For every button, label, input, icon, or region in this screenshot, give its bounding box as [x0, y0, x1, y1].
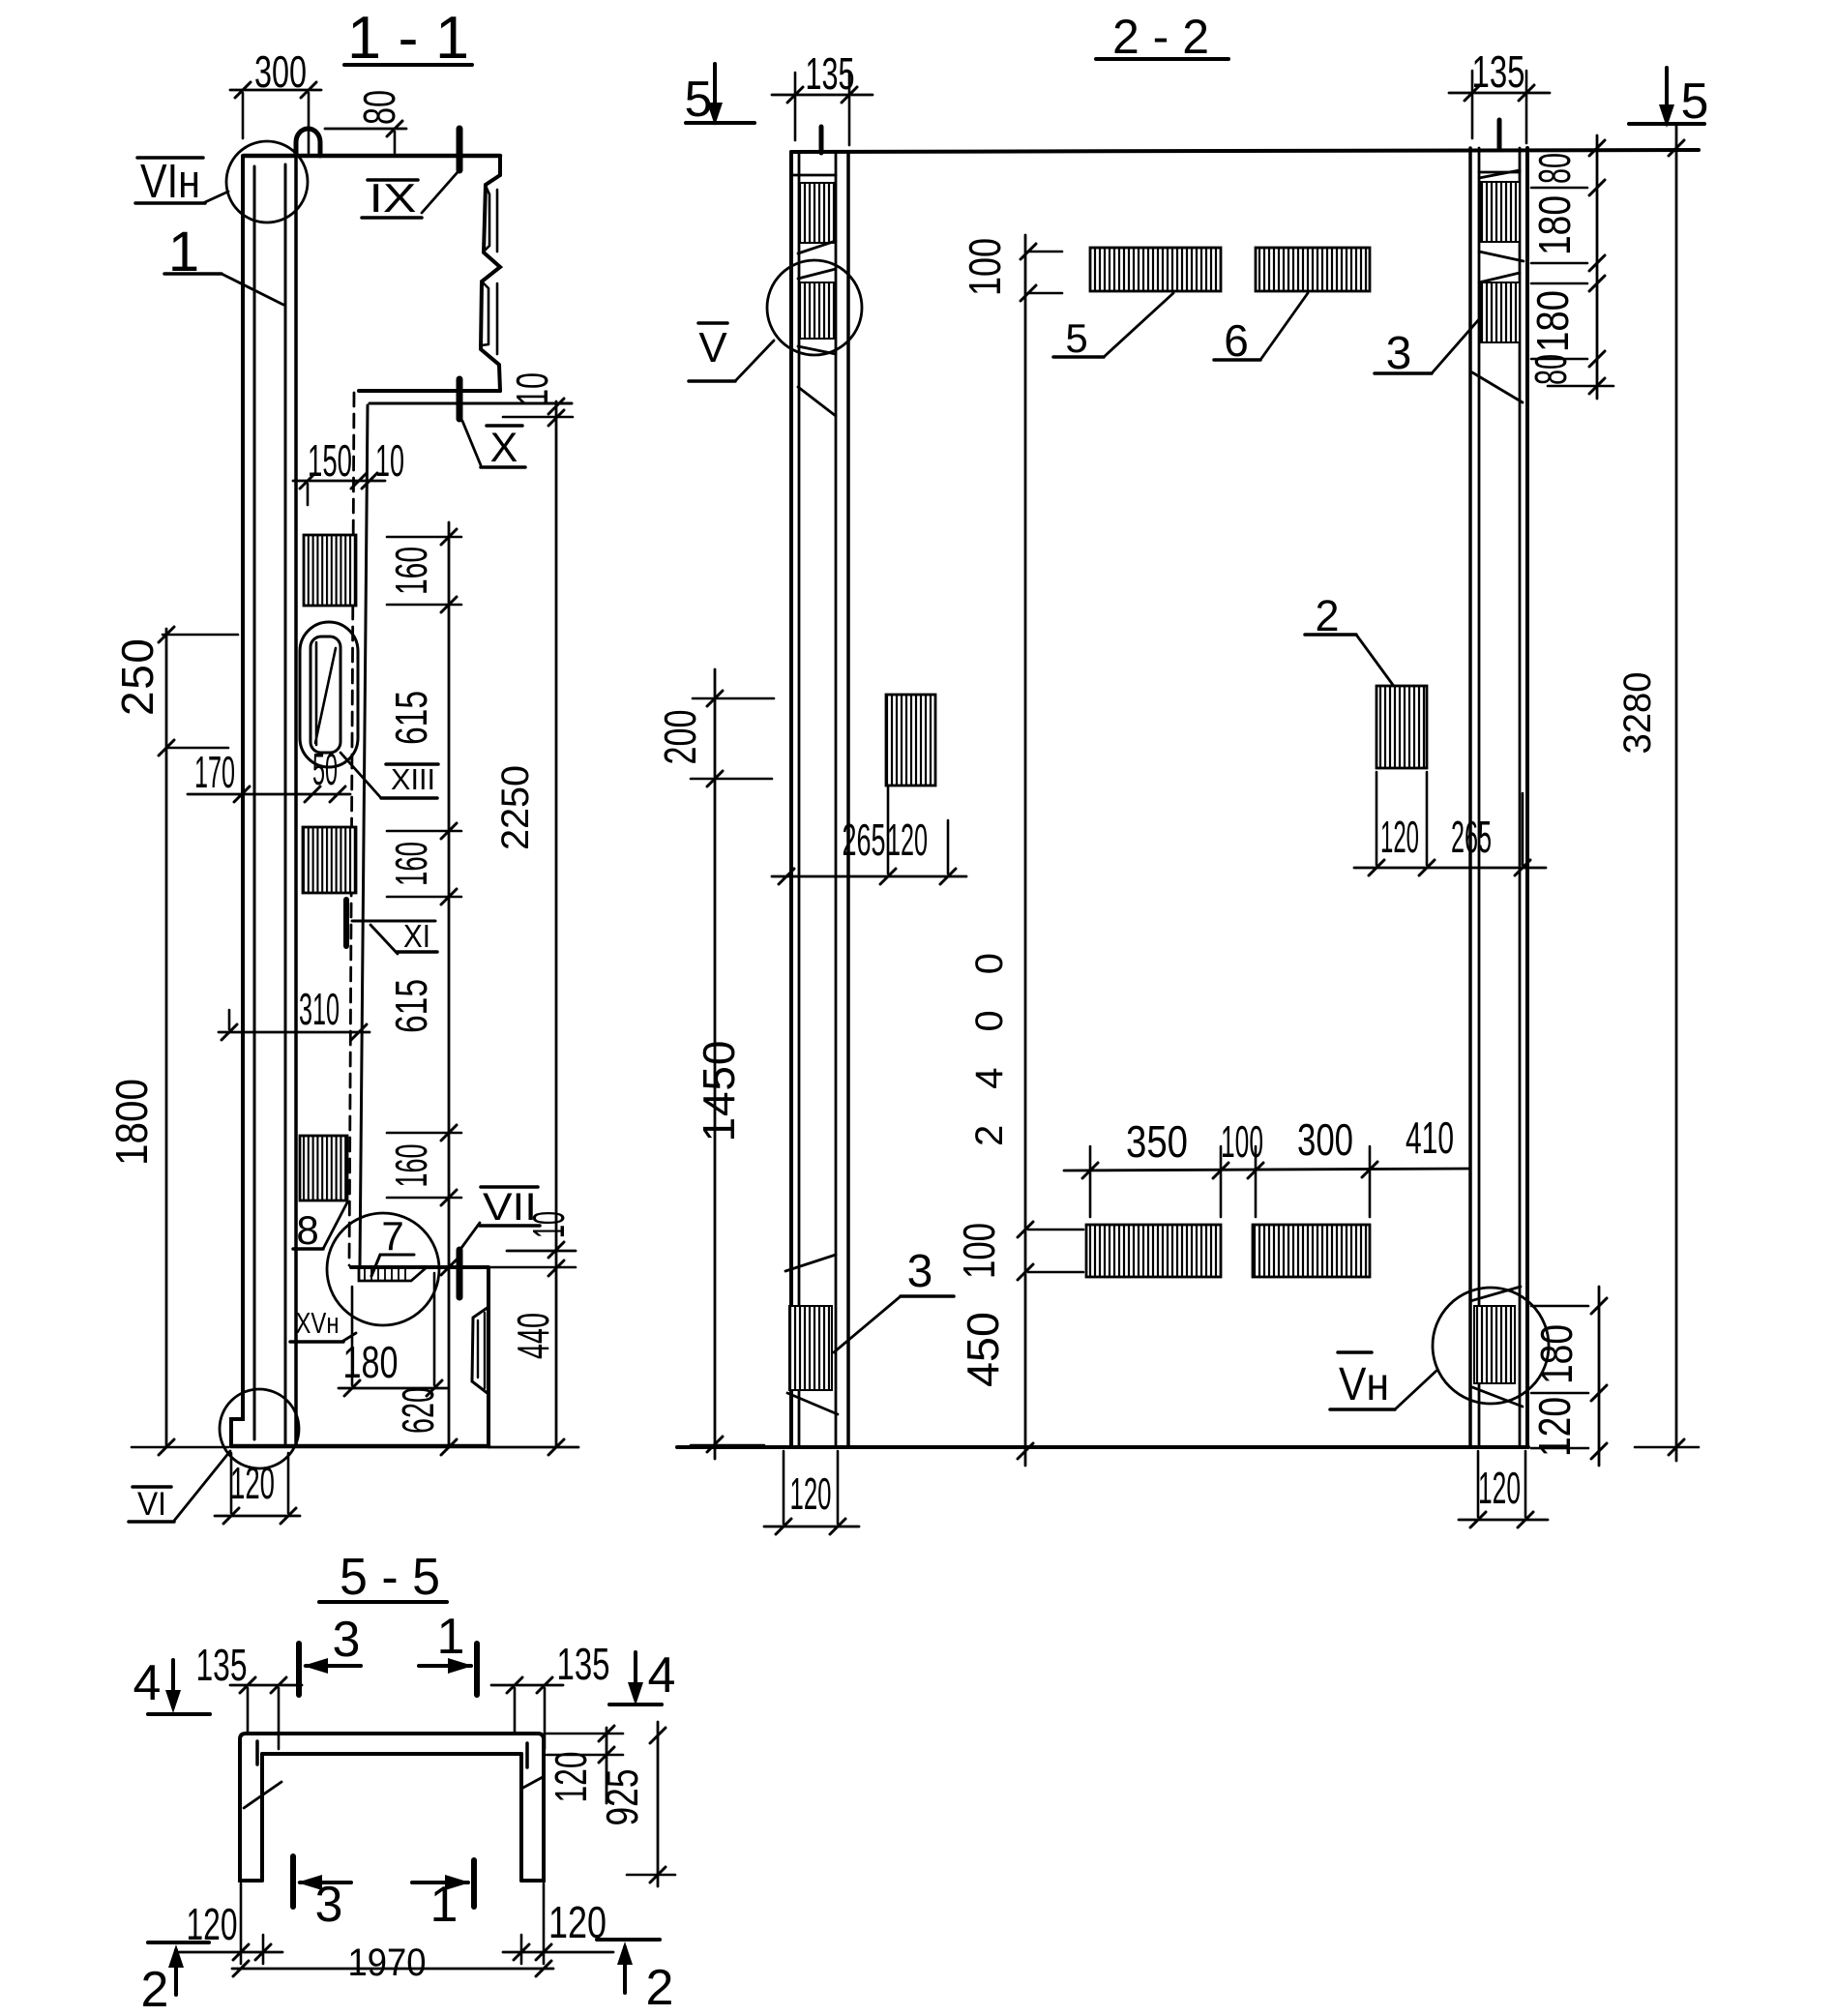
svg-text:2 - 2: 2 - 2 — [1112, 10, 1209, 64]
svg-text:V: V — [698, 324, 727, 371]
svg-text:135: 135 — [196, 1640, 248, 1690]
svg-text:135: 135 — [557, 1639, 610, 1689]
svg-text:450: 450 — [958, 1312, 1008, 1387]
svg-text:10: 10 — [375, 435, 404, 486]
svg-text:135: 135 — [1472, 46, 1525, 97]
svg-text:10: 10 — [507, 372, 557, 405]
svg-text:XI: XI — [403, 918, 430, 954]
svg-text:615: 615 — [386, 979, 436, 1033]
svg-text:1970: 1970 — [348, 1942, 427, 1984]
svg-text:160: 160 — [386, 1144, 436, 1188]
svg-text:80: 80 — [1529, 153, 1580, 184]
svg-text:X: X — [490, 425, 518, 471]
svg-text:100: 100 — [1221, 1116, 1263, 1167]
svg-text:1: 1 — [437, 1609, 465, 1665]
svg-text:8: 8 — [296, 1207, 318, 1253]
svg-text:120: 120 — [790, 1468, 832, 1519]
svg-text:80: 80 — [1525, 354, 1576, 385]
svg-text:440: 440 — [508, 1313, 558, 1359]
svg-text:5: 5 — [685, 72, 713, 128]
svg-text:100: 100 — [960, 238, 1010, 296]
svg-text:5: 5 — [1065, 315, 1087, 361]
svg-text:180: 180 — [1531, 1324, 1582, 1384]
svg-text:615: 615 — [386, 691, 436, 745]
svg-text:925: 925 — [597, 1769, 647, 1826]
svg-text:410: 410 — [1406, 1112, 1454, 1163]
svg-text:265: 265 — [843, 815, 886, 865]
svg-text:3: 3 — [333, 1612, 361, 1668]
svg-text:160: 160 — [386, 547, 436, 595]
svg-text:VIн: VIн — [140, 156, 200, 208]
svg-text:5: 5 — [1681, 74, 1709, 130]
svg-text:4: 4 — [648, 1647, 676, 1704]
svg-text:3280: 3280 — [1616, 672, 1659, 755]
svg-text:170: 170 — [194, 747, 235, 797]
svg-text:350: 350 — [1126, 1116, 1188, 1167]
svg-text:2: 2 — [141, 1962, 169, 2016]
svg-text:620: 620 — [393, 1387, 443, 1434]
svg-text:180: 180 — [1529, 195, 1580, 255]
svg-text:180: 180 — [1527, 290, 1578, 352]
svg-text:Vн: Vн — [1339, 1359, 1389, 1410]
svg-text:160: 160 — [386, 842, 436, 886]
svg-text:2250: 2250 — [494, 765, 537, 850]
svg-text:4: 4 — [133, 1655, 162, 1711]
svg-text:250: 250 — [112, 638, 163, 716]
svg-text:310: 310 — [299, 984, 340, 1034]
svg-text:265: 265 — [1451, 812, 1492, 862]
svg-text:10: 10 — [523, 1211, 574, 1238]
svg-text:1450: 1450 — [694, 1041, 744, 1142]
svg-text:5 - 5: 5 - 5 — [340, 1548, 440, 1606]
svg-text:120: 120 — [230, 1458, 275, 1508]
svg-text:3: 3 — [1386, 328, 1412, 379]
svg-text:2: 2 — [646, 1960, 674, 2016]
svg-text:XIII: XIII — [391, 762, 435, 796]
svg-text:120: 120 — [887, 815, 928, 865]
svg-text:50: 50 — [312, 744, 338, 794]
svg-text:120: 120 — [1529, 1397, 1580, 1457]
svg-text:120: 120 — [1380, 812, 1419, 862]
svg-text:1 - 1: 1 - 1 — [347, 5, 469, 72]
svg-text:3: 3 — [907, 1246, 933, 1297]
svg-text:200: 200 — [655, 710, 705, 765]
svg-text:7: 7 — [381, 1213, 403, 1259]
svg-text:XVн: XVн — [296, 1306, 340, 1340]
svg-text:80: 80 — [354, 90, 404, 125]
svg-text:1800: 1800 — [106, 1079, 157, 1166]
svg-text:IX: IX — [370, 175, 417, 221]
svg-text:100: 100 — [954, 1223, 1004, 1279]
svg-text:300: 300 — [1297, 1114, 1353, 1165]
svg-text:120: 120 — [1478, 1463, 1521, 1513]
svg-text:135: 135 — [806, 48, 855, 99]
svg-text:VI: VI — [137, 1486, 166, 1523]
svg-text:150: 150 — [308, 435, 352, 486]
svg-text:120: 120 — [546, 1752, 596, 1803]
svg-text:6: 6 — [1224, 315, 1249, 366]
